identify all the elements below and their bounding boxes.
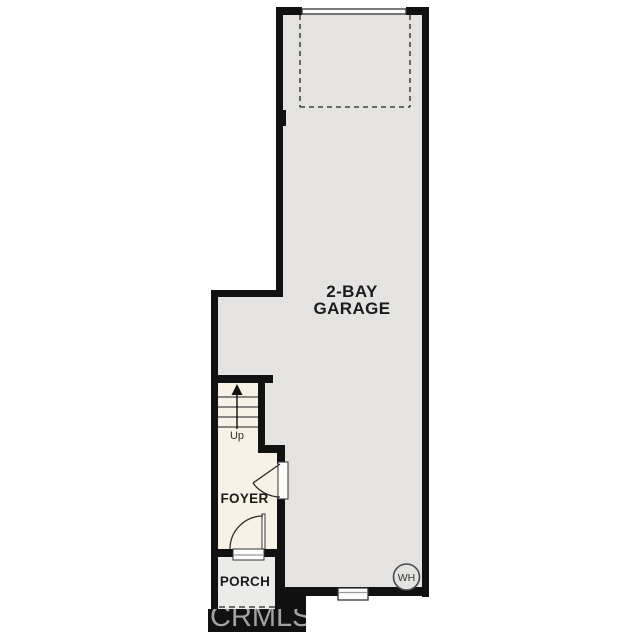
water-heater-symbol: WH xyxy=(394,564,420,590)
porch-room-label: PORCH xyxy=(213,574,277,589)
floor-plan: WH 2-BAY GARAGE FOYER PORCH Up CRMLS xyxy=(0,0,640,640)
stairs-up-label: Up xyxy=(221,430,253,442)
watermark-text: CRMLS xyxy=(210,609,306,632)
foyer-room-label: FOYER xyxy=(213,491,276,506)
garage-door-line xyxy=(302,9,406,14)
garage-rear-threshold xyxy=(338,588,368,600)
water-heater-label: WH xyxy=(398,572,416,584)
watermark: CRMLS xyxy=(208,609,306,632)
door-leaf xyxy=(262,514,265,549)
garage-room-label: 2-BAY GARAGE xyxy=(310,284,394,317)
floor-plan-canvas: WH xyxy=(0,0,640,640)
